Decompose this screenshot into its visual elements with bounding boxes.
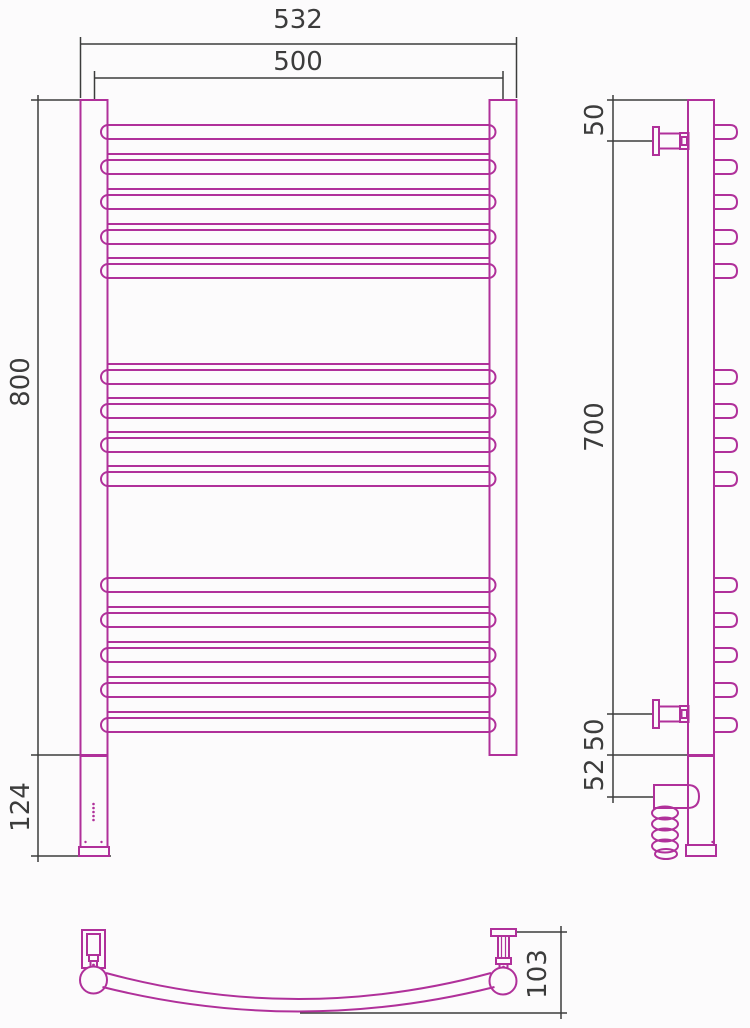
towel-rail-drawing: 532500800124507005052103	[0, 0, 750, 1028]
dim-label-depth: 103	[523, 949, 553, 999]
technical-drawing-page: 532500800124507005052103	[0, 0, 750, 1028]
side-view	[652, 100, 737, 859]
bottom-view	[80, 929, 517, 1012]
front-view	[79, 100, 517, 856]
dim-label-lower-section: 124	[6, 782, 36, 832]
dim-label-bottom-offset: 50	[580, 718, 610, 751]
dim-label-rail-width: 500	[273, 47, 323, 77]
dim-label-height: 800	[6, 357, 36, 407]
dim-label-top-offset: 50	[580, 103, 610, 136]
dim-label-overall-width: 532	[273, 5, 323, 35]
dim-label-element-section: 52	[580, 758, 610, 791]
dimension-lines	[31, 37, 713, 1019]
dim-label-bracket-span: 700	[580, 402, 610, 452]
